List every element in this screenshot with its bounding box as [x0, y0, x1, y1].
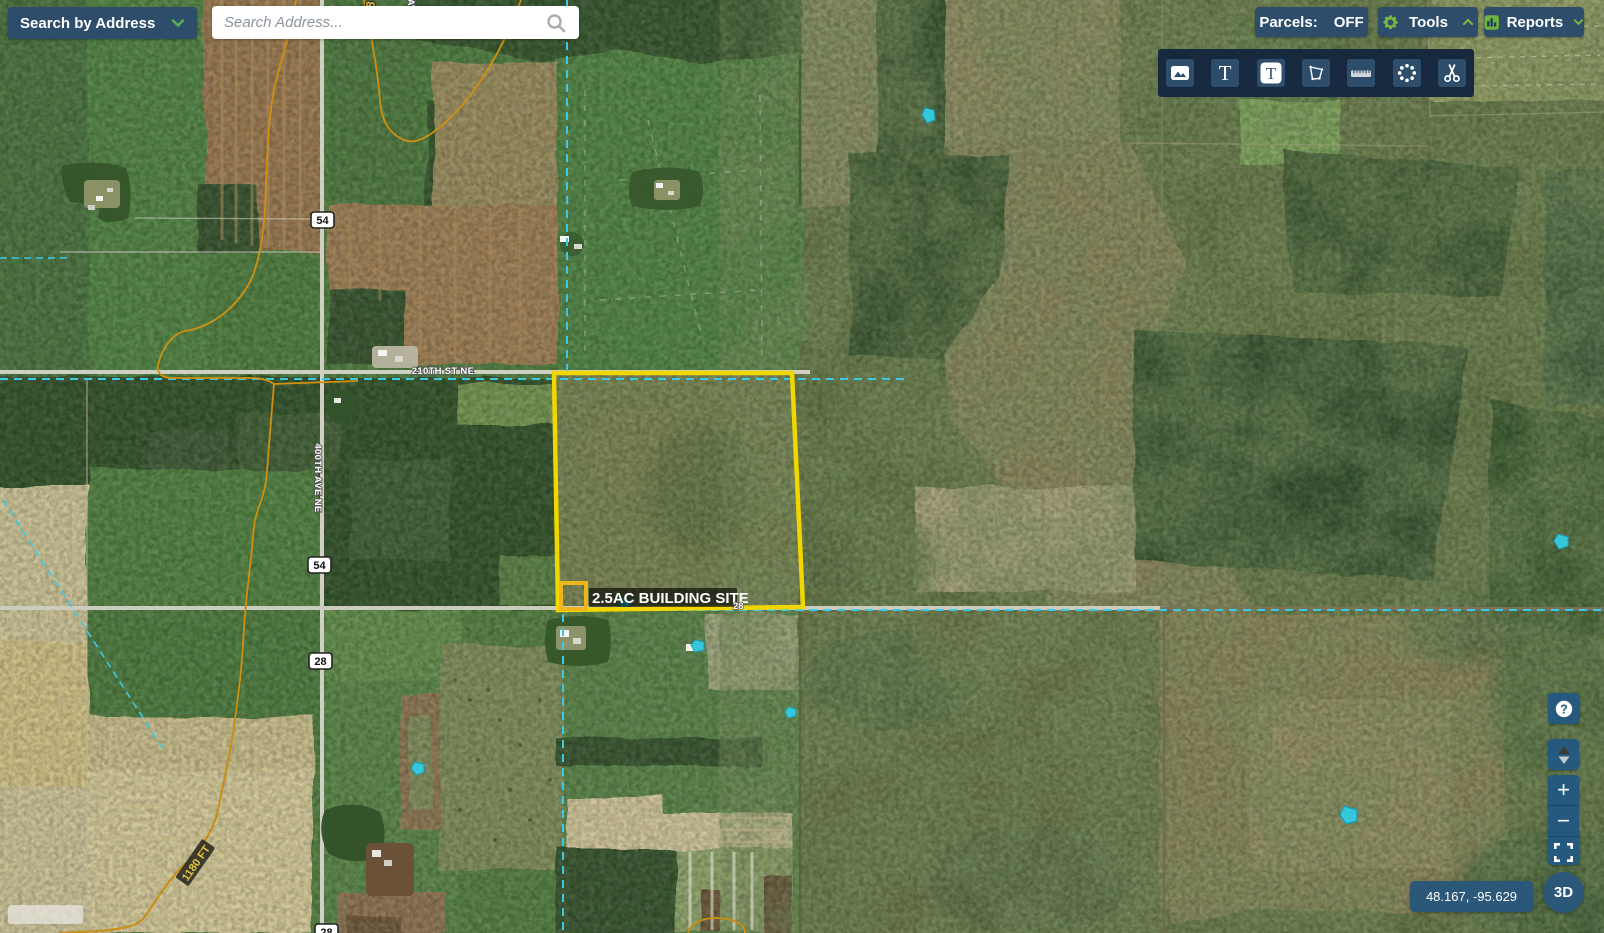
svg-text:54: 54	[316, 215, 329, 227]
svg-text:2.5AC BUILDING SITE: 2.5AC BUILDING SITE	[592, 590, 749, 607]
svg-text:210TH ST NE: 210TH ST NE	[412, 366, 474, 377]
svg-text:T: T	[1265, 64, 1276, 83]
svg-text:?: ?	[1560, 702, 1568, 716]
svg-text:54: 54	[313, 560, 326, 572]
svg-text:28: 28	[733, 601, 744, 612]
svg-text:T: T	[1219, 61, 1232, 85]
svg-text:28: 28	[314, 656, 326, 668]
svg-text:28: 28	[320, 927, 332, 933]
svg-text:400TH AVE NE: 400TH AVE NE	[312, 443, 323, 512]
